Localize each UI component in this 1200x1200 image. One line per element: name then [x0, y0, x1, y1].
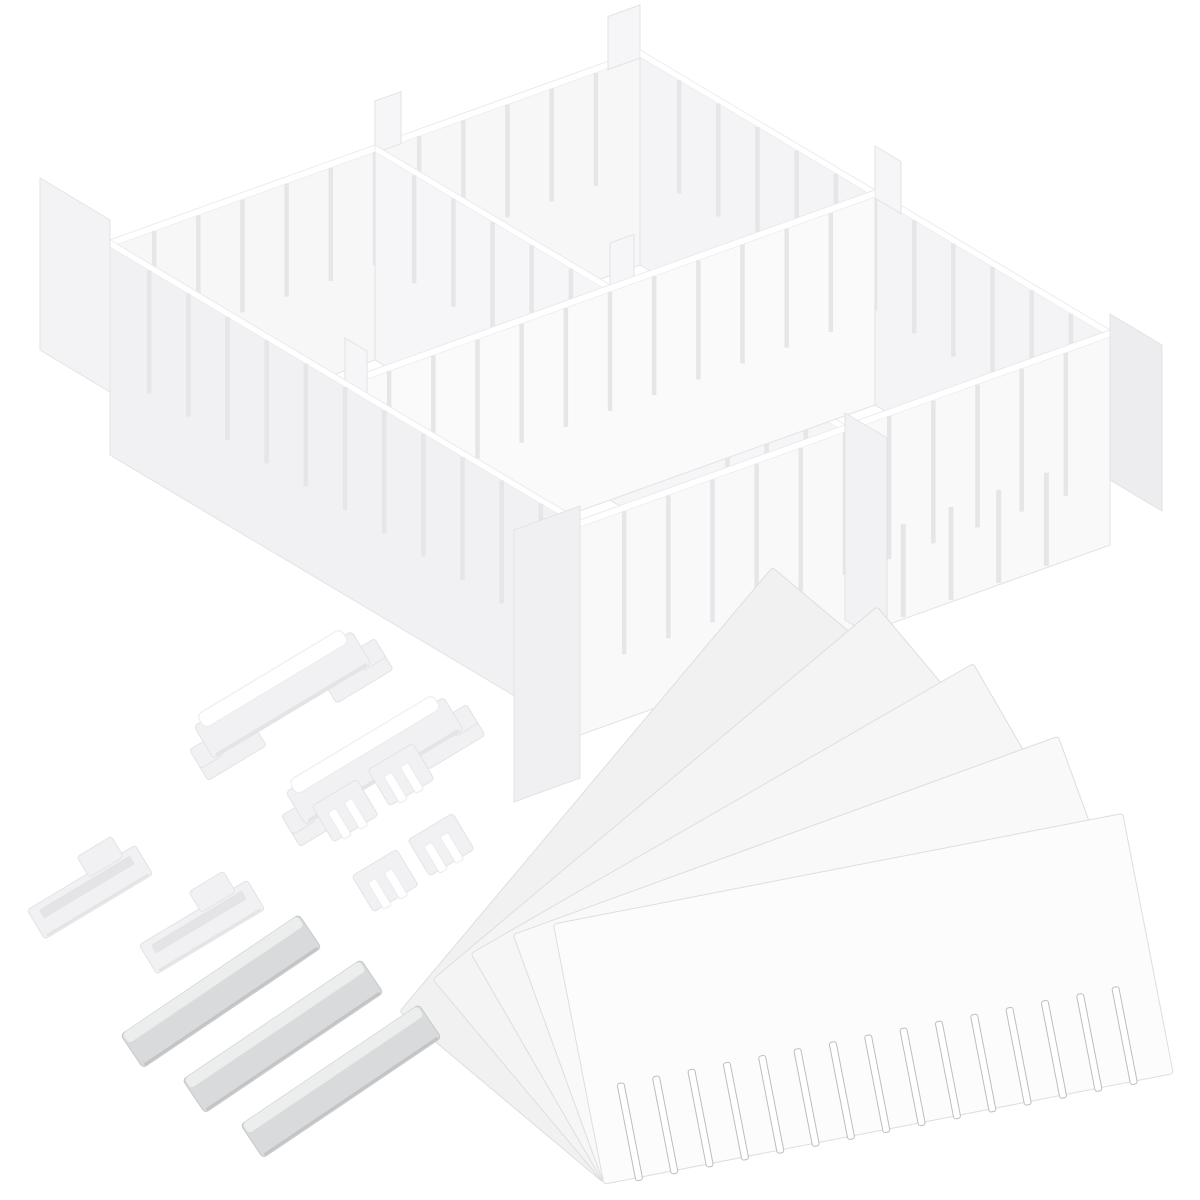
corner-tab — [40, 178, 110, 392]
joint-tab — [845, 413, 887, 645]
product-photo-canvas — [0, 0, 1200, 1200]
small-clip — [408, 813, 476, 878]
small-clip — [352, 849, 420, 914]
assembled-divider-grid — [40, 5, 1162, 802]
joint-tab — [608, 5, 640, 70]
tee-connector — [17, 828, 153, 939]
joint-tab — [375, 92, 401, 153]
corner-tab — [1110, 314, 1162, 511]
corner-tab — [514, 506, 580, 802]
product-photo — [0, 0, 1200, 1200]
